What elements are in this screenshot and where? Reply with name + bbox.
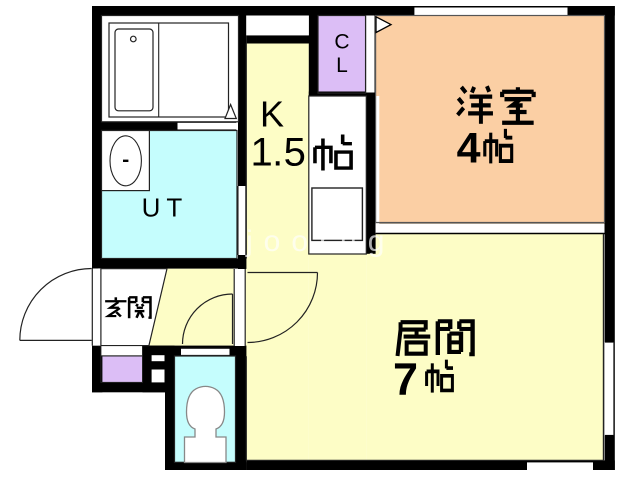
svg-text:7: 7 xyxy=(393,353,418,404)
svg-text:UT: UT xyxy=(142,193,189,223)
svg-text:C: C xyxy=(334,30,349,53)
svg-text:4: 4 xyxy=(457,124,481,172)
svg-text:1: 1 xyxy=(250,131,272,175)
svg-text:.: . xyxy=(272,131,283,175)
svg-text:L: L xyxy=(336,54,348,77)
svg-text:joorug: joorug xyxy=(245,225,395,258)
svg-text:5: 5 xyxy=(284,131,306,175)
svg-text:K: K xyxy=(260,94,284,135)
